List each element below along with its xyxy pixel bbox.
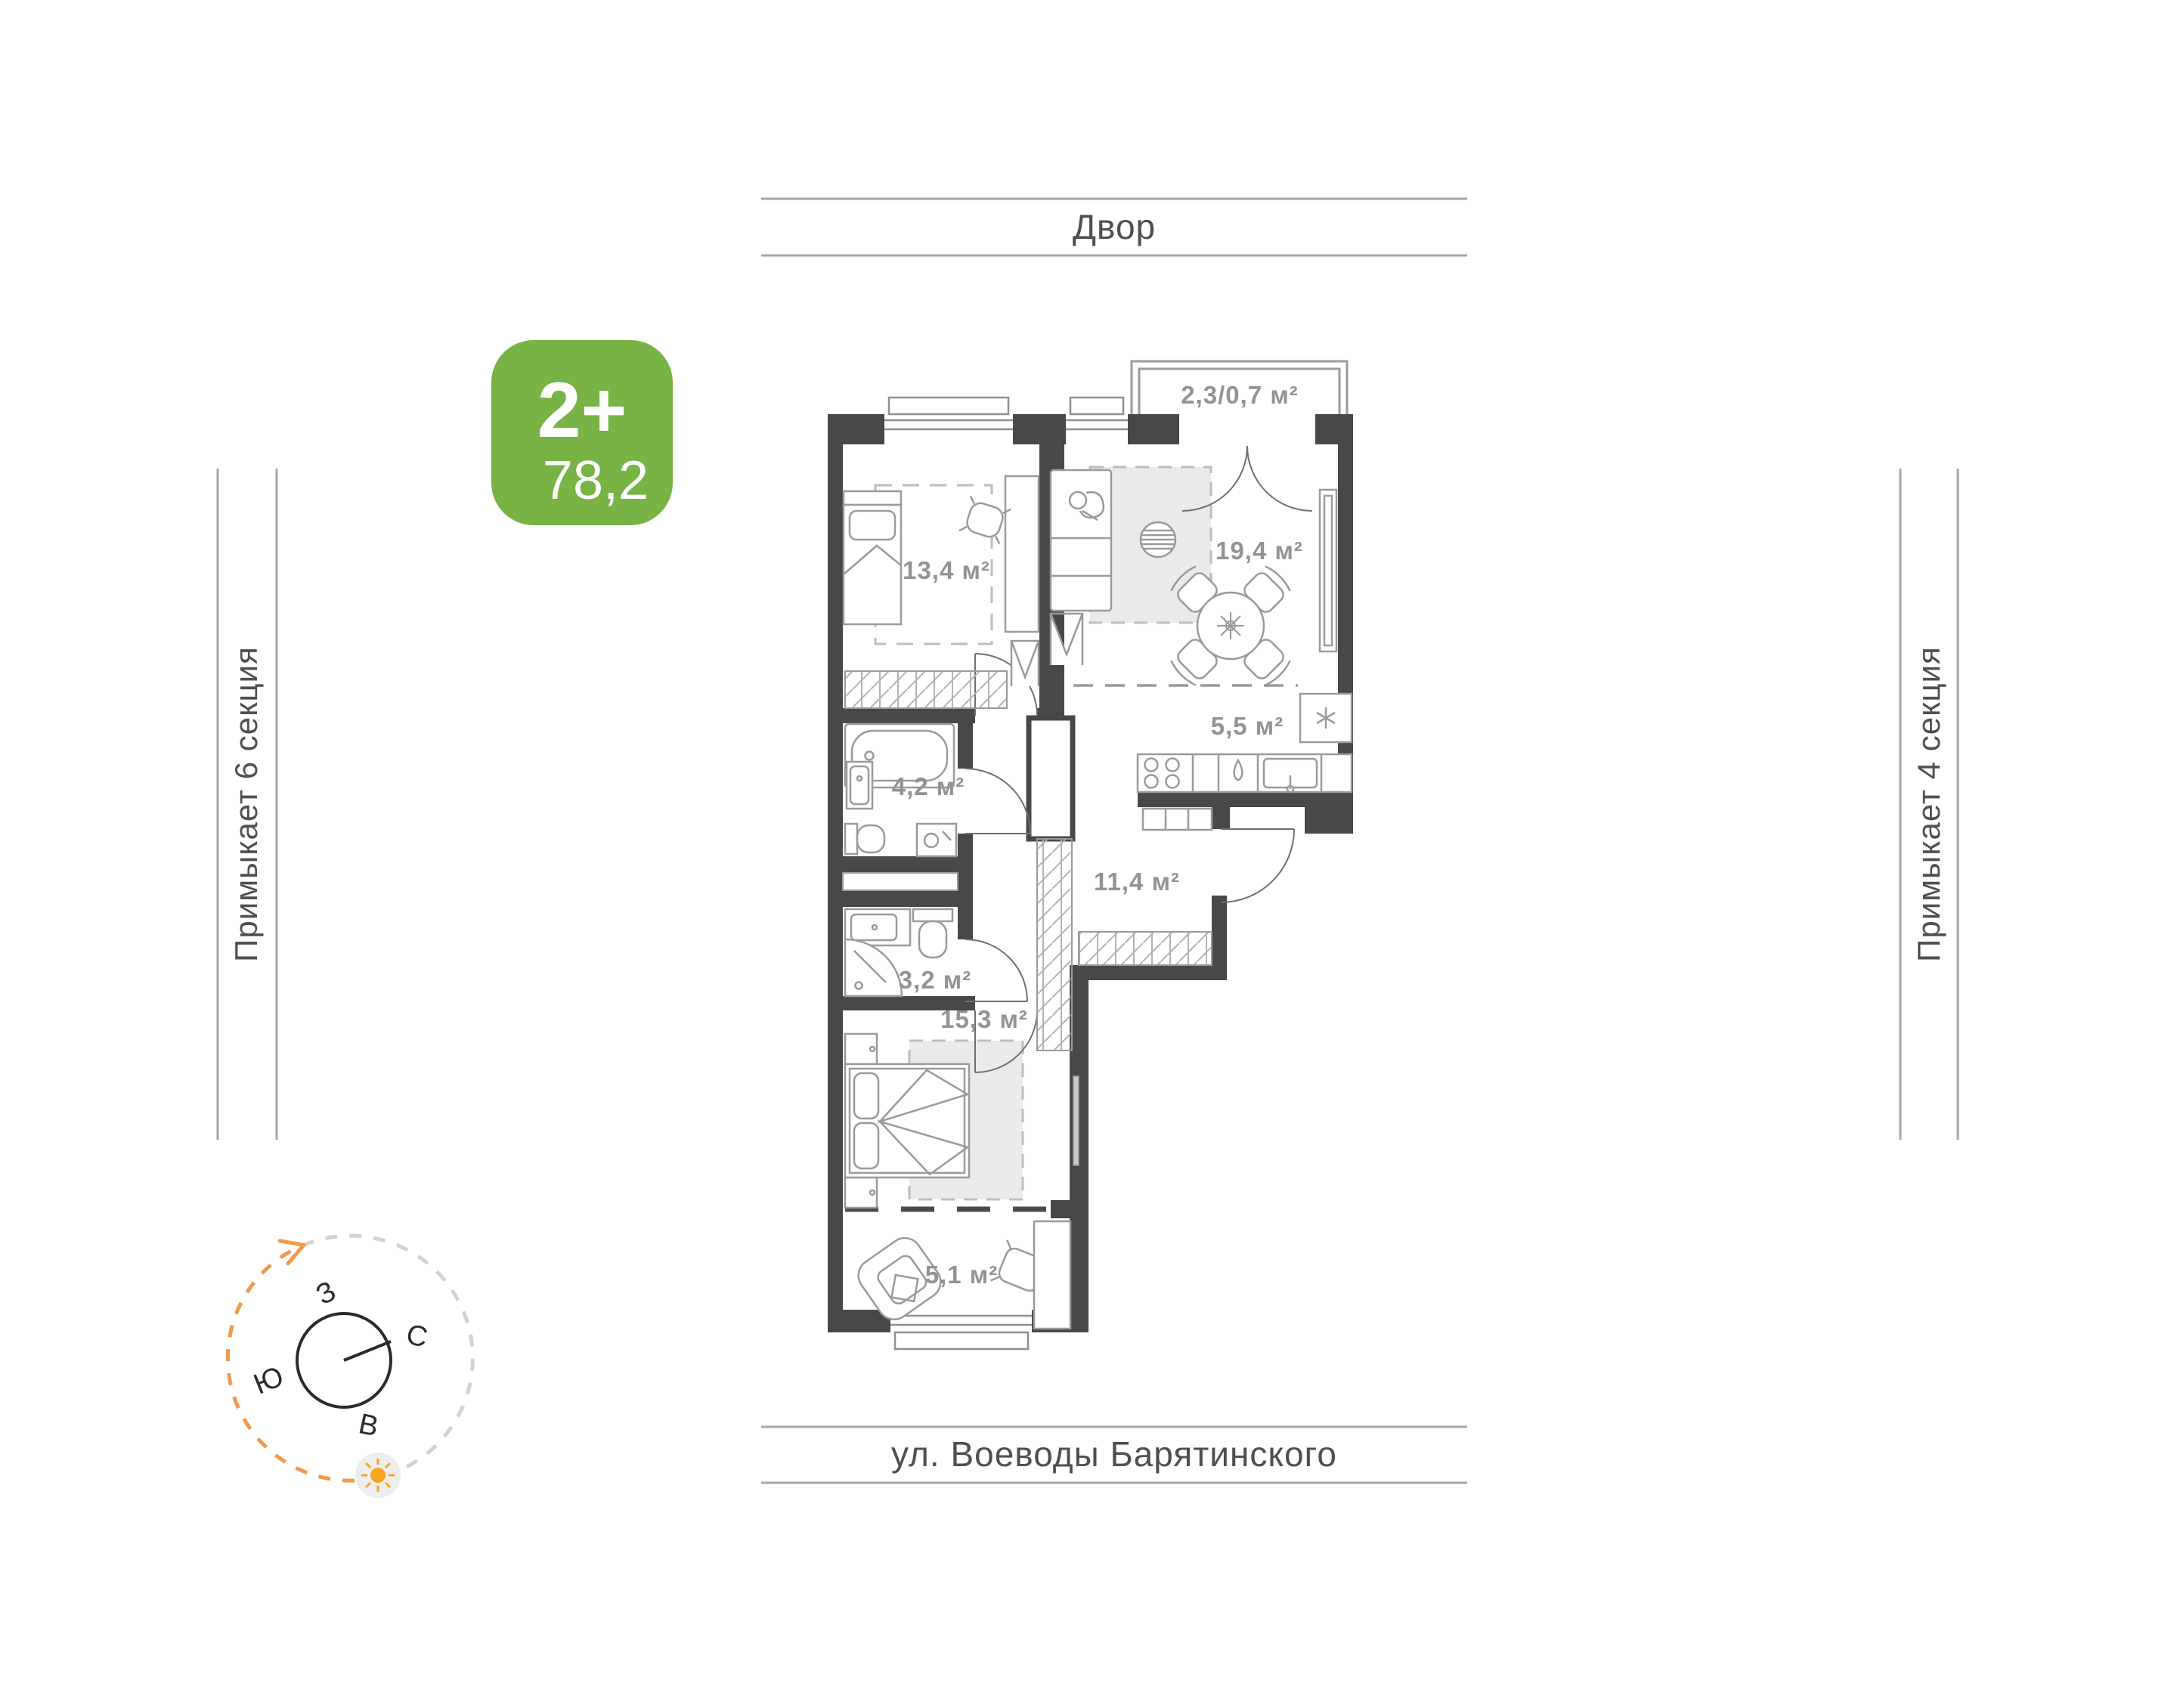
bedroom2-label: 15,3 м² [940, 1005, 1028, 1033]
apartment-badge: 2+ 78,2 [491, 340, 673, 525]
fridge [1300, 694, 1352, 742]
bed1-headboard [844, 491, 901, 505]
floor-plan-page: Двор ул. Воеводы Барятинского Примыкает … [0, 0, 2177, 1708]
bathroom-sink [847, 762, 872, 809]
desk-chair [959, 497, 1011, 544]
bedroom1-shelf [1011, 641, 1039, 686]
washing-machine [917, 824, 956, 856]
kitchen-sink [1264, 759, 1317, 792]
wc-label: 3,2 м² [899, 966, 971, 994]
table-flower [1217, 612, 1244, 639]
shower [845, 939, 902, 996]
toilet-2 [913, 909, 952, 958]
street-band: ул. Воеводы Барятинского [761, 1427, 1467, 1483]
compass-west: З [311, 1275, 341, 1311]
bed1-pillow [850, 511, 895, 540]
living-label: 19,4 м² [1215, 537, 1303, 565]
balcony-door-right [1247, 446, 1312, 511]
bed2-pillow-2 [854, 1123, 878, 1168]
right-section-label: Примыкает 4 секция [1911, 646, 1946, 962]
balcony-label: 2,3/0,7 м² [1181, 381, 1299, 409]
wc-door [965, 939, 1027, 1001]
pouf [1141, 522, 1175, 557]
bed2-pillow-1 [854, 1073, 878, 1119]
compass-east: В [356, 1408, 382, 1443]
sun-icon [355, 1453, 401, 1498]
bathroom-door [965, 769, 1030, 834]
loggia-label: 5,1 м² [925, 1261, 998, 1289]
left-section-label: Примыкает 6 секция [228, 646, 264, 962]
loggia-cabinet [1034, 1221, 1070, 1329]
badge-area: 78,2 [543, 450, 649, 511]
hall-tall-wardrobe [1037, 839, 1072, 1050]
sofa [1051, 470, 1111, 611]
street-label: ул. Воеводы Барятинского [891, 1434, 1337, 1474]
kitchen-label: 5,5 м² [1211, 712, 1284, 740]
desk [1005, 476, 1039, 632]
left-section-band: Примыкает 6 секция [218, 469, 277, 1140]
bathroom-label: 4,2 м² [892, 772, 965, 800]
bedroom1-label: 13,4 м² [903, 556, 990, 584]
dining-set [1169, 565, 1293, 688]
hall-wardrobe [1079, 932, 1212, 965]
entrance-door [1221, 829, 1294, 902]
hall-cupboard [1143, 809, 1212, 830]
bedroom1-wardrobe [845, 671, 1007, 708]
wall-mirror [1073, 1076, 1079, 1165]
compass-south: Ю [249, 1360, 288, 1400]
compass: З С Ю В [228, 1233, 472, 1498]
courtyard-label: Двор [1073, 207, 1156, 246]
duct-column [1029, 718, 1073, 839]
badge-rooms: 2+ [537, 367, 627, 454]
compass-north: С [404, 1319, 431, 1354]
toilet-1 [845, 824, 884, 854]
vent-shaft [843, 873, 958, 890]
right-section-band: Примыкает 4 секция [1900, 469, 1958, 1140]
sun-path-arrow-icon [280, 1233, 308, 1264]
hall-label: 11,4 м² [1094, 868, 1180, 896]
living-mirror [1320, 490, 1336, 651]
courtyard-band: Двор [761, 199, 1467, 255]
floor-plan-canvas: Двор ул. Воеводы Барятинского Примыкает … [0, 0, 2177, 1708]
